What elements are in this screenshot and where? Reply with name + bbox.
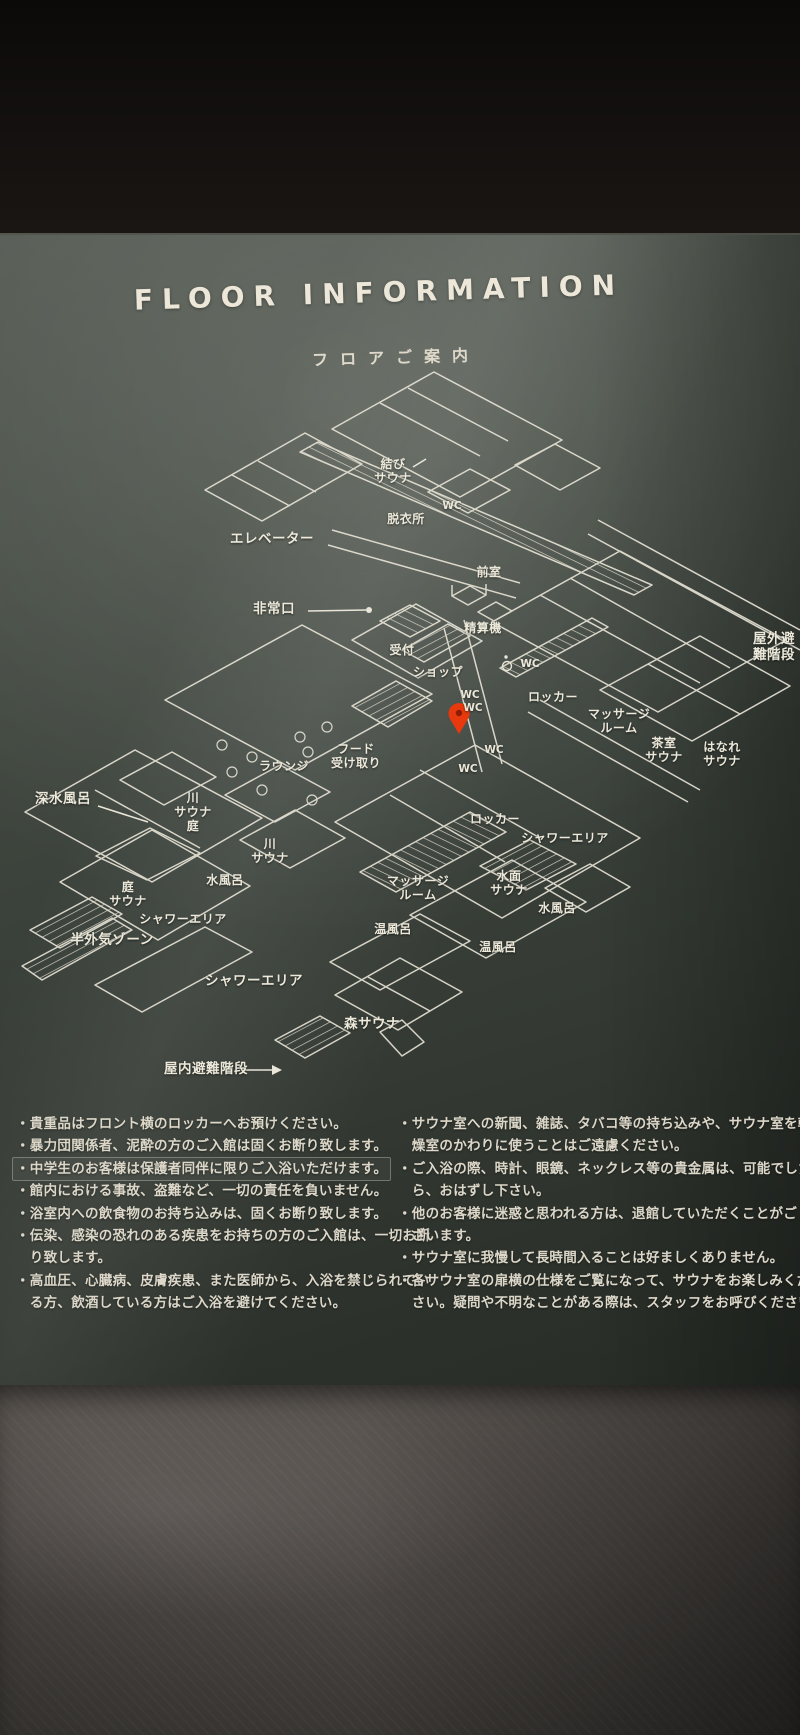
map-label-locker-lower: ロッカー bbox=[470, 812, 520, 826]
rule-line-highlighted: ・中学生のお客様は保護者同伴に限りご入浴いただけます。 bbox=[13, 1158, 390, 1180]
rule-line: 燥室のかわりに使うことはご遠慮ください。 bbox=[398, 1135, 800, 1157]
rule-line: ら、おはずし下さい。 bbox=[398, 1180, 800, 1202]
map-label-massage-room-upper: マッサージ ルーム bbox=[588, 707, 650, 735]
rules-right-column: ・サウナ室への新聞、雑誌、タバコ等の持ち込みや、サウナ室を乾 燥室のかわりに使う… bbox=[398, 1113, 800, 1315]
map-label-musubi-sauna: 結び サウナ bbox=[374, 457, 412, 485]
map-label-indoor-evacuation-stairs: 屋内避難階段 bbox=[164, 1062, 248, 1078]
map-label-wc-4: WC bbox=[484, 744, 503, 756]
rule-line: ・サウナ室に我慢して長時間入ることは好ましくありません。 bbox=[398, 1247, 800, 1269]
map-label-changing-room: 脱衣所 bbox=[387, 512, 425, 526]
photo-of-floor-information-sign: FLOOR INFORMATION フロアご案内 bbox=[0, 0, 800, 1735]
rule-line: ・他のお客様に迷惑と思われる方は、退館していただくことがご bbox=[398, 1203, 800, 1225]
rule-line: さい。疑問や不明なことがある際は、スタッフをお呼びください。 bbox=[398, 1292, 800, 1314]
map-label-wc-5: WC bbox=[458, 763, 477, 775]
rule-line: ・館内における事故、盗難など、一切の責任を負いません。 bbox=[16, 1180, 430, 1202]
map-label-wc-top: WC bbox=[442, 500, 461, 512]
map-label-massage-room-lower: マッサージ ルーム bbox=[387, 874, 449, 902]
map-label-wc-accessible: WC bbox=[520, 658, 539, 670]
map-label-shop: ショップ bbox=[413, 665, 463, 679]
map-label-garden-sauna: 庭 サウナ bbox=[109, 880, 147, 908]
map-label-food-pickup: フード 受け取り bbox=[331, 742, 381, 770]
map-label-lounge: ラウンジ bbox=[259, 759, 309, 773]
map-label-forest-sauna: 森サウナ bbox=[344, 1017, 400, 1033]
map-label-warm-bath-center: 温風呂 bbox=[479, 940, 517, 954]
map-label-water-surface-sauna: 水面 サウナ bbox=[490, 869, 528, 897]
map-label-river-sauna-garden: 川 サウナ 庭 bbox=[174, 791, 212, 833]
rule-line: ・ご入浴の際、時計、眼鏡、ネックレス等の貴金属は、可能でした bbox=[398, 1158, 800, 1180]
map-label-emergency-exit: 非常口 bbox=[253, 602, 295, 618]
map-label-hanare-sauna: はなれ サウナ bbox=[703, 740, 741, 768]
rule-line: り致します。 bbox=[16, 1247, 430, 1269]
map-label-shower-area-left: シャワーエリア bbox=[139, 912, 227, 926]
rule-line: ・浴室内への飲食物のお持ち込みは、固くお断り致します。 bbox=[16, 1203, 430, 1225]
rule-line: ・暴力団関係者、泥酔の方のご入館は固くお断り致します。 bbox=[16, 1135, 430, 1157]
map-label-warm-bath-left: 温風呂 bbox=[374, 922, 412, 936]
map-label-shower-area-bottom: シャワーエリア bbox=[205, 974, 303, 990]
rule-line: ・貴重品はフロント横のロッカーへお預けください。 bbox=[16, 1113, 430, 1135]
floor-map bbox=[0, 0, 800, 1735]
map-label-semi-open-air-zone: 半外気ゾーン bbox=[70, 933, 153, 949]
map-label-deep-water-bath: 深水風呂 bbox=[35, 792, 91, 808]
rules-left-column: ・貴重品はフロント横のロッカーへお預けください。 ・暴力団関係者、泥酔の方のご入… bbox=[16, 1113, 430, 1315]
rule-line: ・サウナ室への新聞、雑誌、タバコ等の持ち込みや、サウナ室を乾 bbox=[398, 1113, 800, 1135]
map-label-cold-bath-left: 水風呂 bbox=[206, 873, 244, 887]
map-label-outdoor-evacuation-stairs: 屋外避難階段 bbox=[748, 632, 800, 664]
rule-line: る方、飲酒している方はご入浴を避けてください。 bbox=[16, 1292, 430, 1314]
rule-line: ・各サウナ室の扉横の仕様をご覧になって、サウナをお楽しみくだ bbox=[398, 1270, 800, 1292]
map-label-wc-3: WC bbox=[463, 702, 482, 714]
map-label-locker-upper: ロッカー bbox=[528, 690, 578, 704]
map-label-elevator: エレベーター bbox=[230, 532, 314, 548]
map-label-wc-2: WC bbox=[460, 689, 479, 701]
rule-line: ざいます。 bbox=[398, 1225, 800, 1247]
rule-line: ・高血圧、心臓病、皮膚疾患、また医師から、入浴を禁じられてい bbox=[16, 1270, 430, 1292]
map-label-reception: 受付 bbox=[389, 643, 414, 657]
map-label-tearoom-sauna: 茶室 サウナ bbox=[645, 736, 683, 764]
rule-line: ・伝染、感染の恐れのある疾患をお持ちの方のご入館は、一切お断 bbox=[16, 1225, 430, 1247]
map-label-payment-machine: 精算機 bbox=[464, 621, 502, 635]
map-label-cold-bath-right: 水風呂 bbox=[538, 901, 576, 915]
map-label-river-sauna: 川 サウナ bbox=[251, 837, 289, 865]
map-label-shower-area-right: シャワーエリア bbox=[521, 831, 609, 845]
map-label-anteroom: 前室 bbox=[476, 565, 501, 579]
